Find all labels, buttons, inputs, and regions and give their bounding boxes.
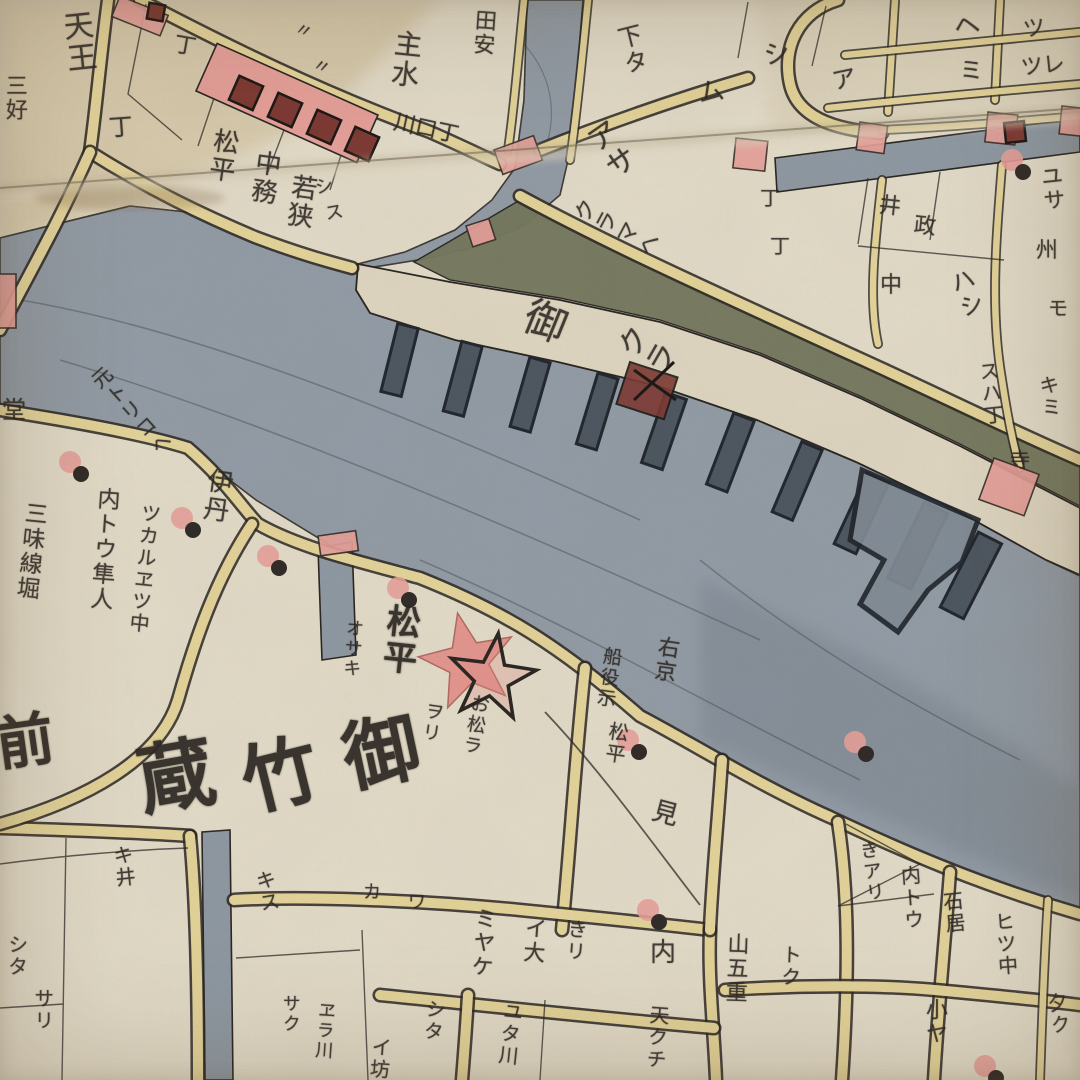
map-canvas [0,0,1080,1080]
woodblock-map-sheet: 天王丁三好丁〃〃松平中務若狭主水田安川口丁下タムシヘツミツレアユサアサ丁丁井政中… [0,0,1080,1080]
paper-grain [0,0,1080,1080]
